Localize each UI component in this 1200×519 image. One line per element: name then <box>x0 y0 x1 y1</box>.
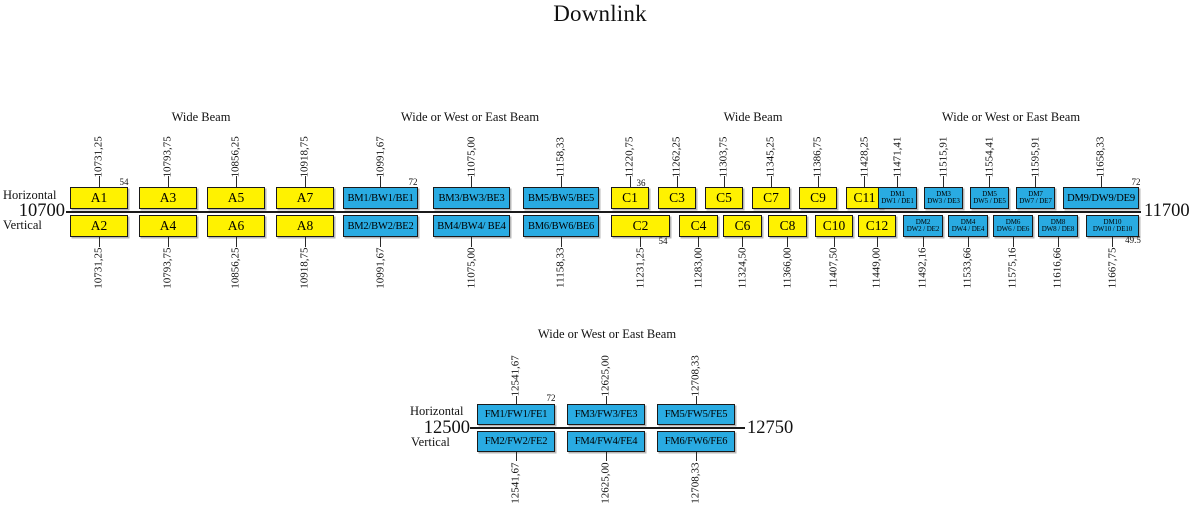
frequency-label: 12625,00 <box>600 462 613 516</box>
channel-box-FM4: FM4/FW4/FE4 <box>567 431 645 452</box>
frequency-tick <box>696 396 697 404</box>
beam-label: Wide or West or East Beam <box>538 327 676 342</box>
frequency-band-12500-12750: Horizontal 12500 Vertical 12750 Wide or … <box>0 0 1200 519</box>
frequency-tick <box>516 452 517 461</box>
frequency-label: 12541,67 <box>510 342 523 396</box>
frequency-tick <box>606 396 607 404</box>
frequency-label: 12708,33 <box>690 462 703 516</box>
polarization-label-vertical: Vertical <box>411 435 450 450</box>
bandwidth-note: 72 <box>547 393 556 403</box>
frequency-label: 12541,67 <box>510 462 523 516</box>
frequency-tick <box>516 396 517 404</box>
frequency-label: 12625,00 <box>600 342 613 396</box>
polarization-label-horizontal: Horizontal <box>410 404 463 419</box>
frequency-axis-line <box>470 427 745 429</box>
channel-box-FM6: FM6/FW6/FE6 <box>657 431 735 452</box>
channel-box-FM5: FM5/FW5/FE5 <box>657 404 735 425</box>
frequency-tick <box>606 452 607 461</box>
channel-box-FM3: FM3/FW3/FE3 <box>567 404 645 425</box>
channel-box-FM2: FM2/FW2/FE2 <box>477 431 555 452</box>
frequency-label: 12708,33 <box>690 342 703 396</box>
band-end-frequency: 12750 <box>747 419 793 437</box>
channel-box-FM1: FM1/FW1/FE1 <box>477 404 555 425</box>
frequency-tick <box>696 452 697 461</box>
